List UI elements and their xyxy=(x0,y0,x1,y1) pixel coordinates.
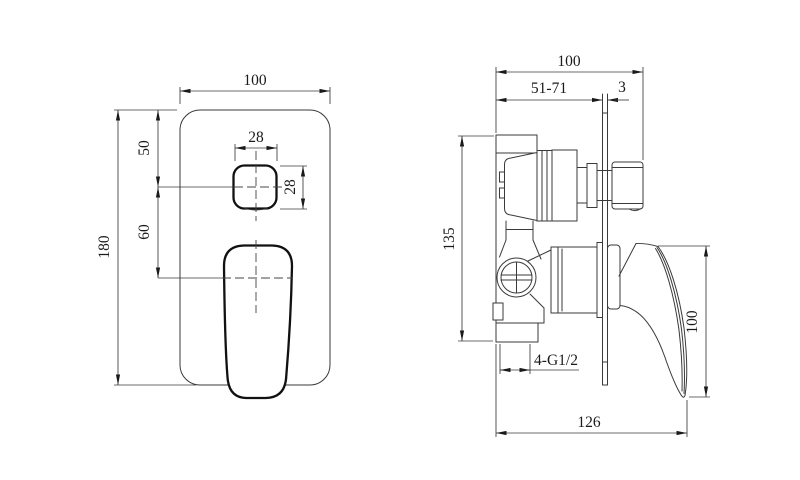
cartridge-cap xyxy=(505,153,538,221)
technical-drawing-canvas: 100 180 50 60 28 28 xyxy=(0,0,800,480)
dim-button-height-label: 28 xyxy=(282,179,299,195)
stem-flange xyxy=(587,164,597,208)
side-view: 100 51-71 3 135 4-G1/2 100 126 xyxy=(441,53,710,437)
dim-front-height-label: 180 xyxy=(96,235,113,259)
dim-plate-thickness-label: 3 xyxy=(618,79,626,96)
body-line xyxy=(528,250,551,261)
handle-base-cap xyxy=(608,245,621,309)
side-diverter-button xyxy=(612,162,643,209)
technical-drawing-page: 100 180 50 60 28 28 xyxy=(0,0,800,480)
dim-side-depth-label: 100 xyxy=(557,53,581,70)
cartridge-rings xyxy=(537,151,552,222)
dim-body-height-label: 135 xyxy=(441,227,458,251)
stem xyxy=(577,168,587,204)
cartridge-body xyxy=(552,150,577,221)
cartridge-clip xyxy=(500,172,505,182)
dim-rough-in-label: 51-71 xyxy=(531,80,567,97)
hub-flange xyxy=(597,243,603,318)
side-top-bracket xyxy=(496,135,537,153)
dim-handle-height-label: 100 xyxy=(684,310,701,334)
dim-front-width-label: 100 xyxy=(243,72,267,89)
handle-blade-inner-line xyxy=(657,248,684,394)
front-handle xyxy=(224,246,292,399)
handle-blade-back-edge xyxy=(620,306,685,398)
cartridge-clip xyxy=(500,188,505,198)
body-tab xyxy=(493,303,503,320)
handle-blade-inner-line xyxy=(656,249,683,392)
dim-button-width-label: 28 xyxy=(248,129,264,146)
handle-top-edge xyxy=(636,243,658,246)
dim-handle-offset-label: 60 xyxy=(136,224,153,240)
dim-inlet-thread-label: 4-G1/2 xyxy=(534,352,578,369)
dim-button-offset-label: 50 xyxy=(136,140,153,156)
dim-overall-length-label: 126 xyxy=(577,414,601,431)
body-line xyxy=(530,294,544,308)
handle-neck-edge xyxy=(619,244,636,277)
body-line xyxy=(500,240,507,257)
front-view: 100 180 50 60 28 28 xyxy=(96,72,330,398)
